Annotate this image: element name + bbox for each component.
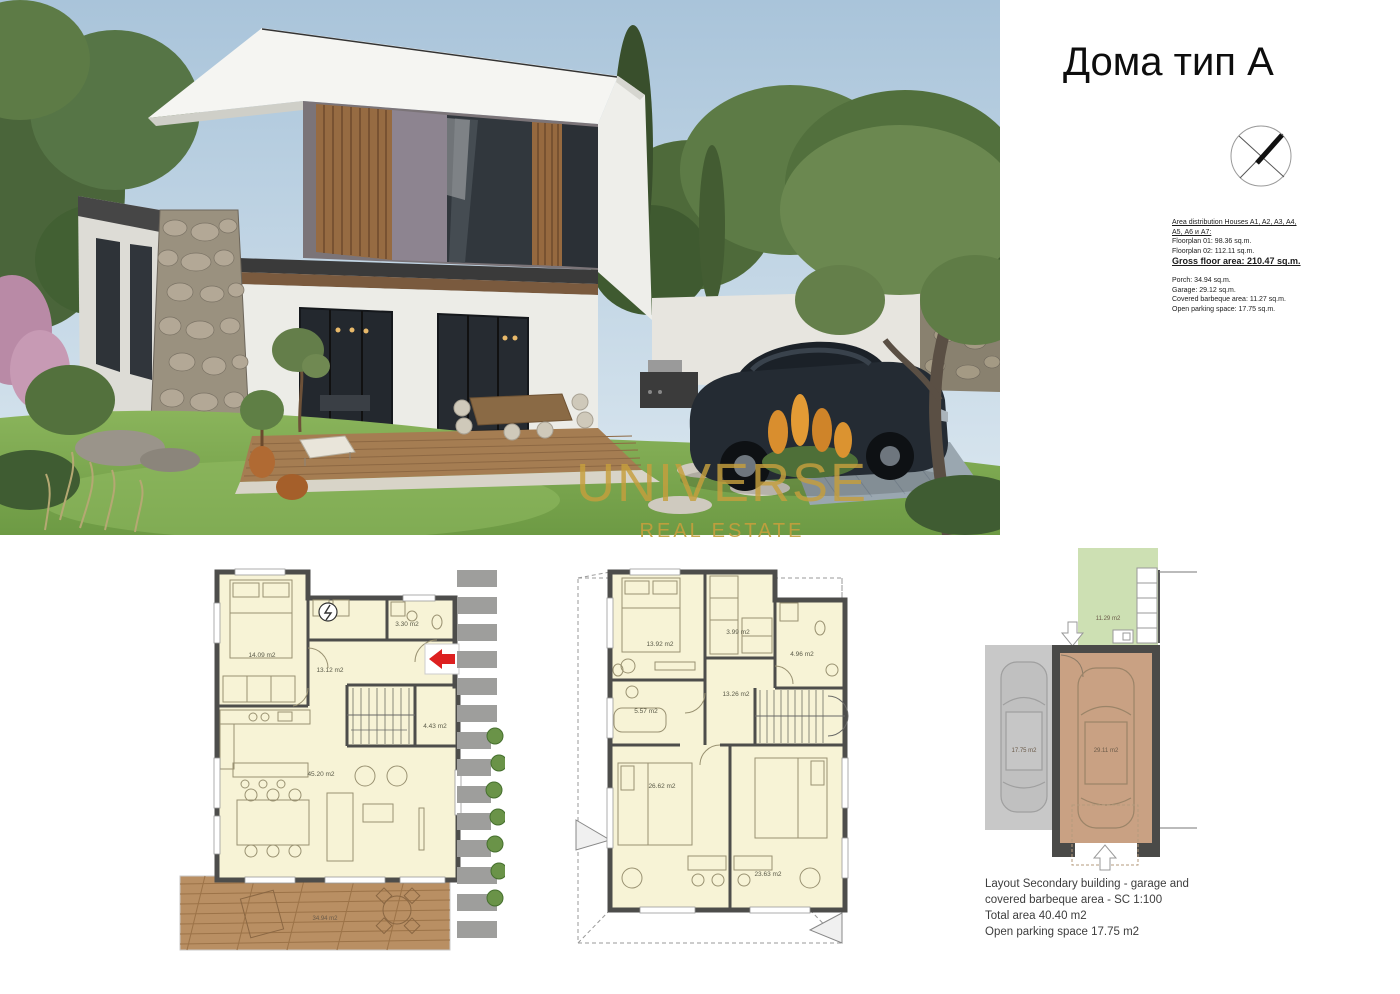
info-garage: Garage: 29.12 sq.m. [1172,286,1312,296]
room-label: 26.62 m2 [648,783,675,790]
caption-line1: Layout Secondary building - garage and [985,876,1189,892]
room-label: 3.99 m2 [726,629,750,636]
info-bbq: Covered barbeque area: 11.27 sq.m. [1172,295,1312,305]
room-label: 5.57 m2 [634,708,658,715]
stone-pillar [150,210,250,444]
room-label: 34.94 m2 [312,916,338,922]
parking-car [1001,662,1047,812]
info-floorplan01: Floorplan 01: 98.36 sq.m. [1172,237,1312,247]
room-label: 23.63 m2 [754,871,781,878]
parking-label: 17.75 m2 [1011,748,1037,754]
room-label: 14.09 m2 [248,652,275,659]
page-title: Дома тип А [1063,40,1274,85]
info-gross-area: Gross floor area: 210.47 sq.m. [1172,257,1312,267]
cypress-tree-small [699,145,725,305]
caption-line3: Total area 40.40 m2 [985,908,1189,924]
caption-line4: Open parking space 17.75 m2 [985,924,1189,940]
house-render-illustration [0,0,1000,535]
room-label: 4.43 m2 [423,723,447,730]
info-heading-line2: A5, А6 и А7: [1172,228,1312,238]
garage-label: 29.11 m2 [1094,748,1119,754]
room-label: 13.92 m2 [646,641,673,648]
compass-icon [1227,122,1295,190]
floorplan-02: 13.92 m2 3.99 m2 4.96 m2 13.26 m2 5.57 m… [570,558,870,968]
garage-layout: 11.29 m2 17.75 m2 29.11 m2 [975,540,1200,880]
floorplan-outline [610,572,845,910]
roof-corner-left [576,820,610,850]
garage-caption: Layout Secondary building - garage and c… [985,876,1189,940]
roof-corner-right [810,913,842,943]
room-label: 13.26 m2 [722,691,749,698]
info-floorplan02: Floorplan 02: 112.11 sq.m. [1172,247,1312,257]
deck [180,876,450,950]
floorplan-outline [217,572,458,880]
exterior-steps [457,570,497,938]
info-heading-line1: Area distribution Houses A1, A2, A3, A4, [1172,218,1312,228]
house-main [148,28,652,444]
floorplan-01: 14.09 m2 3.30 m2 13.12 m2 4.43 m2 45.20 … [175,558,505,994]
room-label: 3.30 m2 [395,621,419,628]
electrical-symbol-icon [319,603,337,621]
room-label: 13.12 m2 [316,667,343,674]
info-parking: Open parking space: 17.75 sq.m. [1172,305,1312,315]
entry-arrow-up-icon [1094,845,1116,870]
bbq-label: 11.29 m2 [1096,616,1121,622]
caption-line2: covered barbeque area - SC 1:100 [985,892,1189,908]
info-porch: Porch: 34.94 sq.m. [1172,276,1312,286]
barbecue-grill [648,360,682,374]
entrance-arrow [425,644,459,674]
room-label: 45.20 m2 [307,771,334,778]
house-render-photo [0,0,1000,535]
area-distribution-block: Area distribution Houses A1, A2, A3, A4,… [1172,218,1312,314]
room-label: 4.96 m2 [790,651,814,658]
